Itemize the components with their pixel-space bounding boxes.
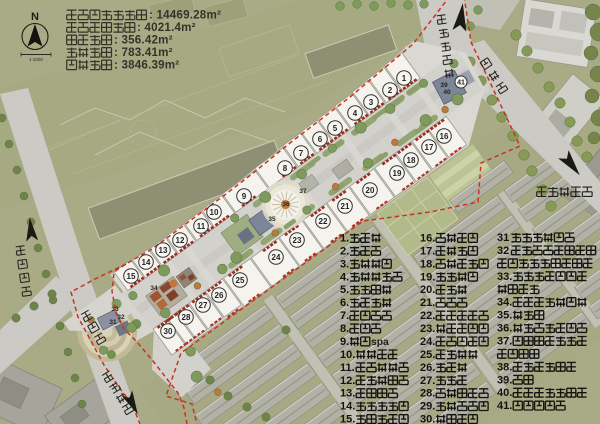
svg-text:4: 4 [353,109,358,118]
svg-text:6: 6 [318,135,323,144]
svg-text:21.: 21. [420,297,435,309]
svg-text:1:1000: 1:1000 [29,57,43,62]
svg-text:28.: 28. [420,388,435,400]
svg-text:3.: 3. [340,258,349,270]
svg-text:20.: 20. [420,284,435,296]
svg-text:23.: 23. [420,323,435,335]
svg-text:spa: spa [371,337,389,348]
svg-text:41.: 41. [497,400,512,412]
svg-text:27.: 27. [420,375,435,387]
svg-text:36.: 36. [497,323,512,335]
svg-text:39: 39 [440,82,448,89]
svg-text:25: 25 [236,276,245,285]
svg-text:22: 22 [319,217,328,226]
svg-text:24.: 24. [420,336,435,348]
svg-text:25.: 25. [420,349,435,361]
svg-text:5.: 5. [340,284,349,296]
svg-text:34.: 34. [497,297,512,309]
svg-text:37.: 37. [497,336,512,348]
svg-text:14: 14 [142,258,151,267]
svg-text:: 14469.28m²: : 14469.28m² [149,9,221,22]
svg-text:35: 35 [268,216,276,223]
svg-text:31: 31 [497,232,509,244]
svg-text:33.: 33. [497,271,512,283]
svg-text:11.: 11. [340,362,355,374]
svg-text:16: 16 [440,132,449,141]
svg-text:17.: 17. [420,245,435,257]
svg-text:19: 19 [393,169,402,178]
svg-text:26.: 26. [420,362,435,374]
svg-text:2: 2 [388,86,393,95]
svg-text:30.: 30. [420,414,435,424]
svg-text:41: 41 [457,80,465,87]
svg-text:33: 33 [111,306,119,313]
svg-text:: 356.42m²: : 356.42m² [114,34,173,47]
svg-text:6.: 6. [340,297,349,309]
svg-text:: 783.41m²: : 783.41m² [114,46,173,59]
svg-text:31: 31 [109,319,117,326]
svg-text:1.: 1. [340,233,349,245]
svg-text:20: 20 [366,186,375,195]
svg-text:13.: 13. [340,388,355,400]
svg-text:1: 1 [402,74,407,83]
svg-text:: 4021.4m²: : 4021.4m² [137,21,196,34]
svg-text:27: 27 [199,301,208,310]
svg-text:9.: 9. [340,336,349,348]
svg-text:16.: 16. [420,233,435,245]
svg-text:7.: 7. [340,310,349,322]
svg-text:12.: 12. [340,375,355,387]
svg-text:18.: 18. [420,258,435,270]
svg-text:29.: 29. [420,401,435,413]
svg-text:24: 24 [272,253,281,262]
svg-text:26: 26 [215,291,224,300]
svg-text:10: 10 [210,208,219,217]
svg-text:23: 23 [293,236,302,245]
svg-text:17: 17 [425,143,434,152]
svg-text:9: 9 [242,192,247,201]
svg-text:40: 40 [443,89,451,96]
svg-text:36: 36 [282,201,290,208]
svg-text:15.: 15. [340,414,355,424]
svg-text:40.: 40. [497,387,512,399]
svg-text:32: 32 [497,245,509,257]
svg-text:30: 30 [164,327,173,336]
svg-text:37: 37 [299,188,307,195]
svg-text:10.: 10. [340,349,355,361]
svg-text:18: 18 [407,156,416,165]
svg-text:32: 32 [117,314,125,321]
svg-text:13: 13 [159,246,168,255]
svg-text:2.: 2. [340,245,349,257]
svg-text:35.: 35. [497,310,512,322]
svg-text:11: 11 [197,222,206,231]
svg-text:4.: 4. [340,271,349,283]
svg-text:14.: 14. [340,401,355,413]
svg-text:34: 34 [150,285,158,292]
svg-text:21: 21 [341,202,350,211]
svg-text:N: N [31,11,39,23]
svg-text:5: 5 [333,124,338,133]
svg-text:19.: 19. [420,271,435,283]
svg-text:8: 8 [283,164,288,173]
svg-text:28: 28 [182,313,191,322]
svg-text:: 3846.39m²: : 3846.39m² [114,59,179,72]
svg-text:22.: 22. [420,310,435,322]
svg-text:38.: 38. [497,361,512,373]
svg-text:3: 3 [369,98,374,107]
svg-text:12: 12 [176,236,185,245]
svg-text:39.: 39. [497,374,512,386]
svg-text:7: 7 [299,149,304,158]
svg-text:8.: 8. [340,323,349,335]
svg-text:15: 15 [127,272,136,281]
